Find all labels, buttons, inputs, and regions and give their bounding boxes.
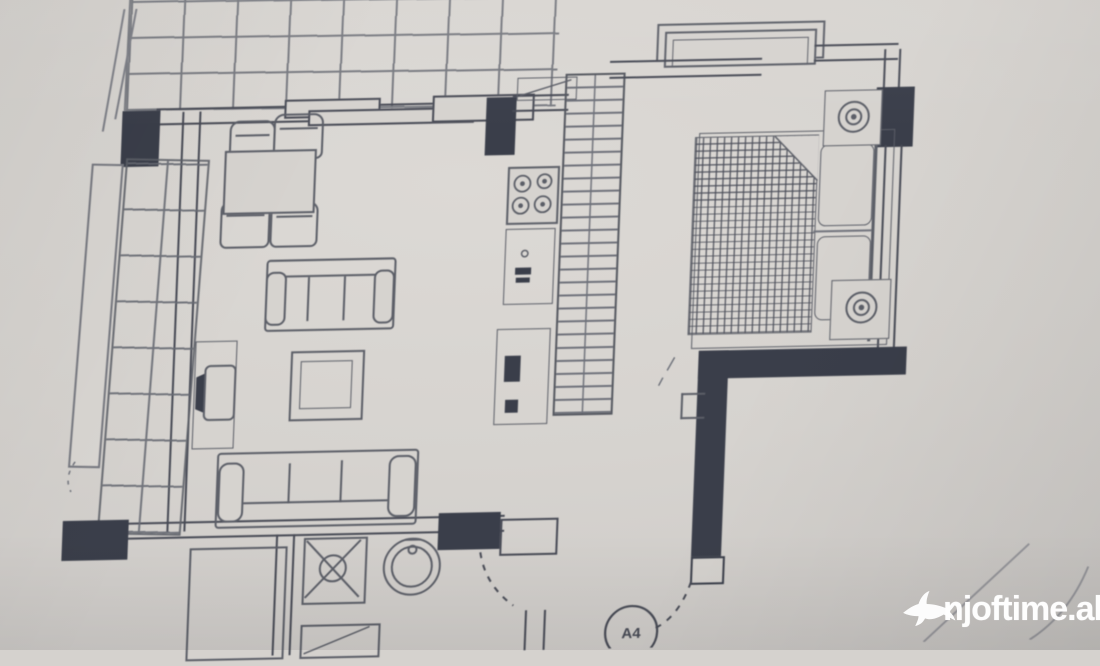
lamp-symbol <box>838 101 869 132</box>
plan-symbols: A4 <box>0 0 1100 662</box>
washbasin-symbol <box>383 538 441 595</box>
floorplan-drawing: A4 <box>0 0 1100 662</box>
blanket-fold <box>773 136 819 182</box>
bathroom-door-swing-arc <box>478 552 515 607</box>
unit-label: A4 <box>621 625 641 642</box>
lamp-symbol <box>846 292 877 323</box>
unit-label-circle: A4 <box>604 606 658 659</box>
floorplan-photo: A4 <box>0 0 1100 650</box>
bedroom-door-dashes <box>659 357 675 385</box>
balcony-door-swing-arc <box>68 462 76 492</box>
entrance-door-swing-arc <box>654 582 691 629</box>
vent-diagonal <box>520 80 572 96</box>
terrace-edge-lines <box>103 9 137 132</box>
shower-symbol <box>305 540 361 598</box>
stove-burners <box>512 174 551 214</box>
watermark: njoftime.al <box>902 576 1100 642</box>
sink-details <box>515 250 532 283</box>
watermark-text: njoftime.al <box>943 590 1100 629</box>
